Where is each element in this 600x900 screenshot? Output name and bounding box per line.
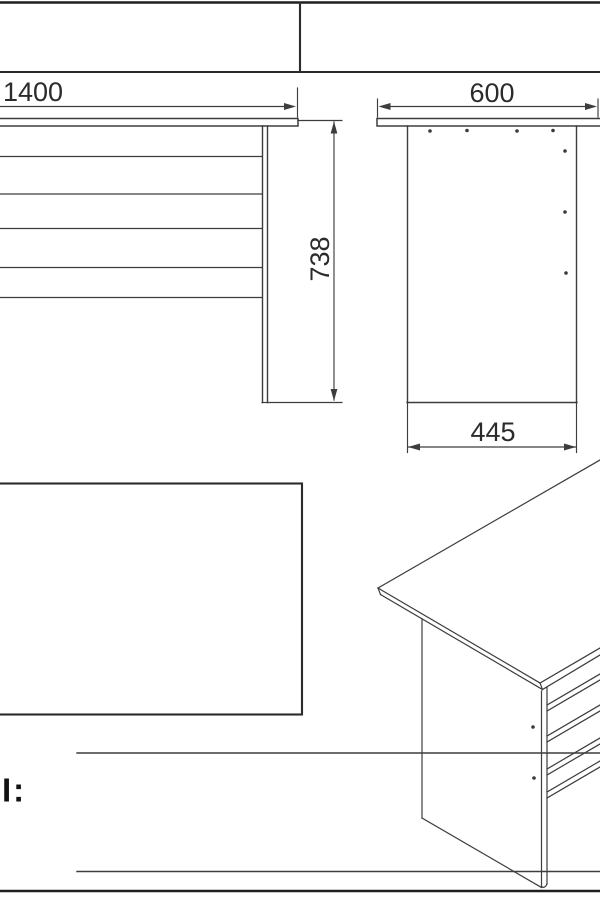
side-base-dimension: 445 bbox=[408, 403, 577, 453]
screw-dot bbox=[531, 725, 535, 729]
rail-edge bbox=[547, 761, 600, 792]
iso-top-front-right-thickness bbox=[543, 655, 600, 690]
front-height-dimension-label: 738 bbox=[305, 236, 335, 281]
desk-dimension-drawing: 1400 738 bbox=[0, 0, 600, 900]
screw-dot bbox=[532, 776, 536, 780]
rail-edge bbox=[547, 680, 600, 711]
front-desktop-slab bbox=[0, 119, 298, 127]
iso-back-rails bbox=[547, 674, 600, 798]
arrowhead-down bbox=[331, 389, 338, 401]
rail-edge bbox=[547, 767, 600, 798]
screw-dot bbox=[563, 149, 567, 153]
arrowhead-left bbox=[408, 444, 420, 451]
screw-dot bbox=[428, 129, 432, 133]
iso-top-back-edge bbox=[378, 460, 600, 588]
screw-hole-dots bbox=[428, 129, 568, 275]
arrowhead-right bbox=[585, 103, 597, 110]
arrowhead-right bbox=[284, 103, 296, 110]
side-desktop-slab bbox=[377, 119, 600, 127]
side-base-dimension-label: 445 bbox=[470, 417, 515, 447]
front-height-dimension: 738 bbox=[268, 121, 342, 403]
arrowhead-right bbox=[564, 444, 576, 451]
iso-top-front-left-thickness bbox=[381, 595, 543, 690]
screw-dot bbox=[515, 129, 519, 133]
technical-drawing-sheet: 1400 738 bbox=[0, 0, 600, 900]
arrowhead-left bbox=[379, 103, 391, 110]
front-view: 1400 738 bbox=[0, 77, 342, 403]
plan-view bbox=[0, 484, 302, 715]
side-depth-dimension-label: 600 bbox=[469, 78, 514, 108]
sheet-border-lines bbox=[0, 3, 600, 73]
front-width-dimension: 1400 bbox=[0, 77, 298, 117]
front-back-slat-lines bbox=[0, 157, 262, 298]
iso-panel-bottom-edge bbox=[422, 818, 542, 888]
footer-label: І: bbox=[2, 772, 26, 809]
footer-table: І: bbox=[0, 753, 600, 891]
side-depth-dimension: 600 bbox=[378, 78, 599, 117]
screw-dot bbox=[563, 210, 567, 214]
side-view: 600 445 bbox=[377, 78, 600, 453]
front-width-dimension-label: 1400 bbox=[3, 77, 63, 107]
plan-desktop-outline bbox=[0, 484, 302, 715]
rail-edge bbox=[547, 705, 600, 736]
screw-dot bbox=[465, 129, 469, 133]
arrowhead-up bbox=[331, 122, 338, 134]
rail-edge bbox=[547, 744, 600, 775]
rail-edge bbox=[547, 711, 600, 742]
iso-panel-bottom-corner bbox=[542, 884, 548, 887]
screw-dot bbox=[551, 129, 555, 133]
isometric-view bbox=[378, 460, 600, 888]
rail-edge bbox=[547, 674, 600, 705]
iso-top-front-right-edge bbox=[540, 648, 600, 683]
screw-dot bbox=[564, 271, 568, 275]
iso-top-front-left-edge bbox=[378, 588, 540, 683]
